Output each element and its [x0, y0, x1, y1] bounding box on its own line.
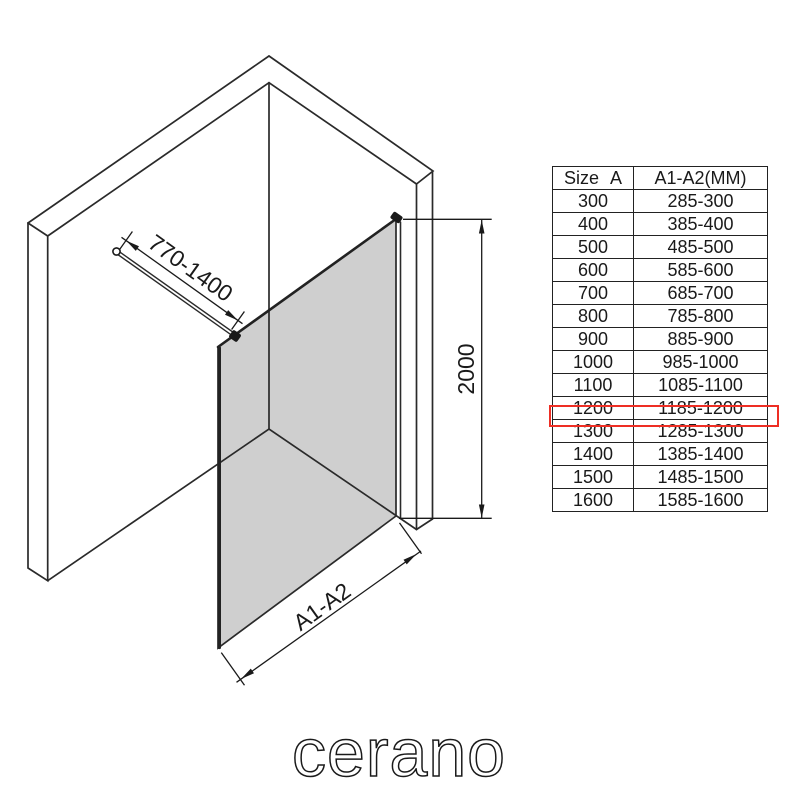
- table-row: 14001385-1400: [553, 443, 768, 466]
- table-row: 11001085-1100: [553, 374, 768, 397]
- range-cell: 585-600: [634, 259, 768, 282]
- table-row: 700685-700: [553, 282, 768, 305]
- size-cell: 600: [553, 259, 634, 282]
- range-cell: 885-900: [634, 328, 768, 351]
- size-cell: 400: [553, 213, 634, 236]
- product-dimension-sheet: 770-1400 2000 A1-A2 cerano: [0, 0, 800, 800]
- range-cell: 685-700: [634, 282, 768, 305]
- col-header-range: A1-A2(MM): [634, 167, 768, 190]
- range-cell: 485-500: [634, 236, 768, 259]
- range-cell: 1485-1500: [634, 466, 768, 489]
- range-cell: 985-1000: [634, 351, 768, 374]
- range-cell: 385-400: [634, 213, 768, 236]
- table-row: 600585-600: [553, 259, 768, 282]
- range-cell: 1085-1100: [634, 374, 768, 397]
- size-cell: 1400: [553, 443, 634, 466]
- size-cell: 800: [553, 305, 634, 328]
- table-row: 500485-500: [553, 236, 768, 259]
- size-cell: 1500: [553, 466, 634, 489]
- table-row: 1000985-1000: [553, 351, 768, 374]
- size-cell: 500: [553, 236, 634, 259]
- range-cell: 1585-1600: [634, 489, 768, 512]
- table-row: 16001585-1600: [553, 489, 768, 512]
- size-cell: 300: [553, 190, 634, 213]
- range-cell: 1385-1400: [634, 443, 768, 466]
- wall-flange: [113, 248, 120, 255]
- brand-logo: cerano: [292, 715, 506, 791]
- size-table: Size A A1-A2(MM) 300285-300 400385-400 5…: [552, 166, 768, 512]
- table-row: 400385-400: [553, 213, 768, 236]
- table-row: 800785-800: [553, 305, 768, 328]
- range-cell: 285-300: [634, 190, 768, 213]
- table-row: 15001485-1500: [553, 466, 768, 489]
- dim-width-label: 770-1400: [144, 229, 238, 307]
- table-row: 300285-300: [553, 190, 768, 213]
- table-header-row: Size A A1-A2(MM): [553, 167, 768, 190]
- size-cell: 1600: [553, 489, 634, 512]
- range-cell: 785-800: [634, 305, 768, 328]
- highlight-box: [549, 405, 779, 427]
- dim-height-label: 2000: [453, 343, 479, 394]
- size-cell: 1100: [553, 374, 634, 397]
- table-row: 900885-900: [553, 328, 768, 351]
- size-cell: 1000: [553, 351, 634, 374]
- size-cell: 900: [553, 328, 634, 351]
- dimension-bar-length: 770-1400: [120, 229, 245, 329]
- size-cell: 700: [553, 282, 634, 305]
- col-header-size: Size A: [553, 167, 634, 190]
- dimension-glass-height: 2000: [399, 219, 492, 518]
